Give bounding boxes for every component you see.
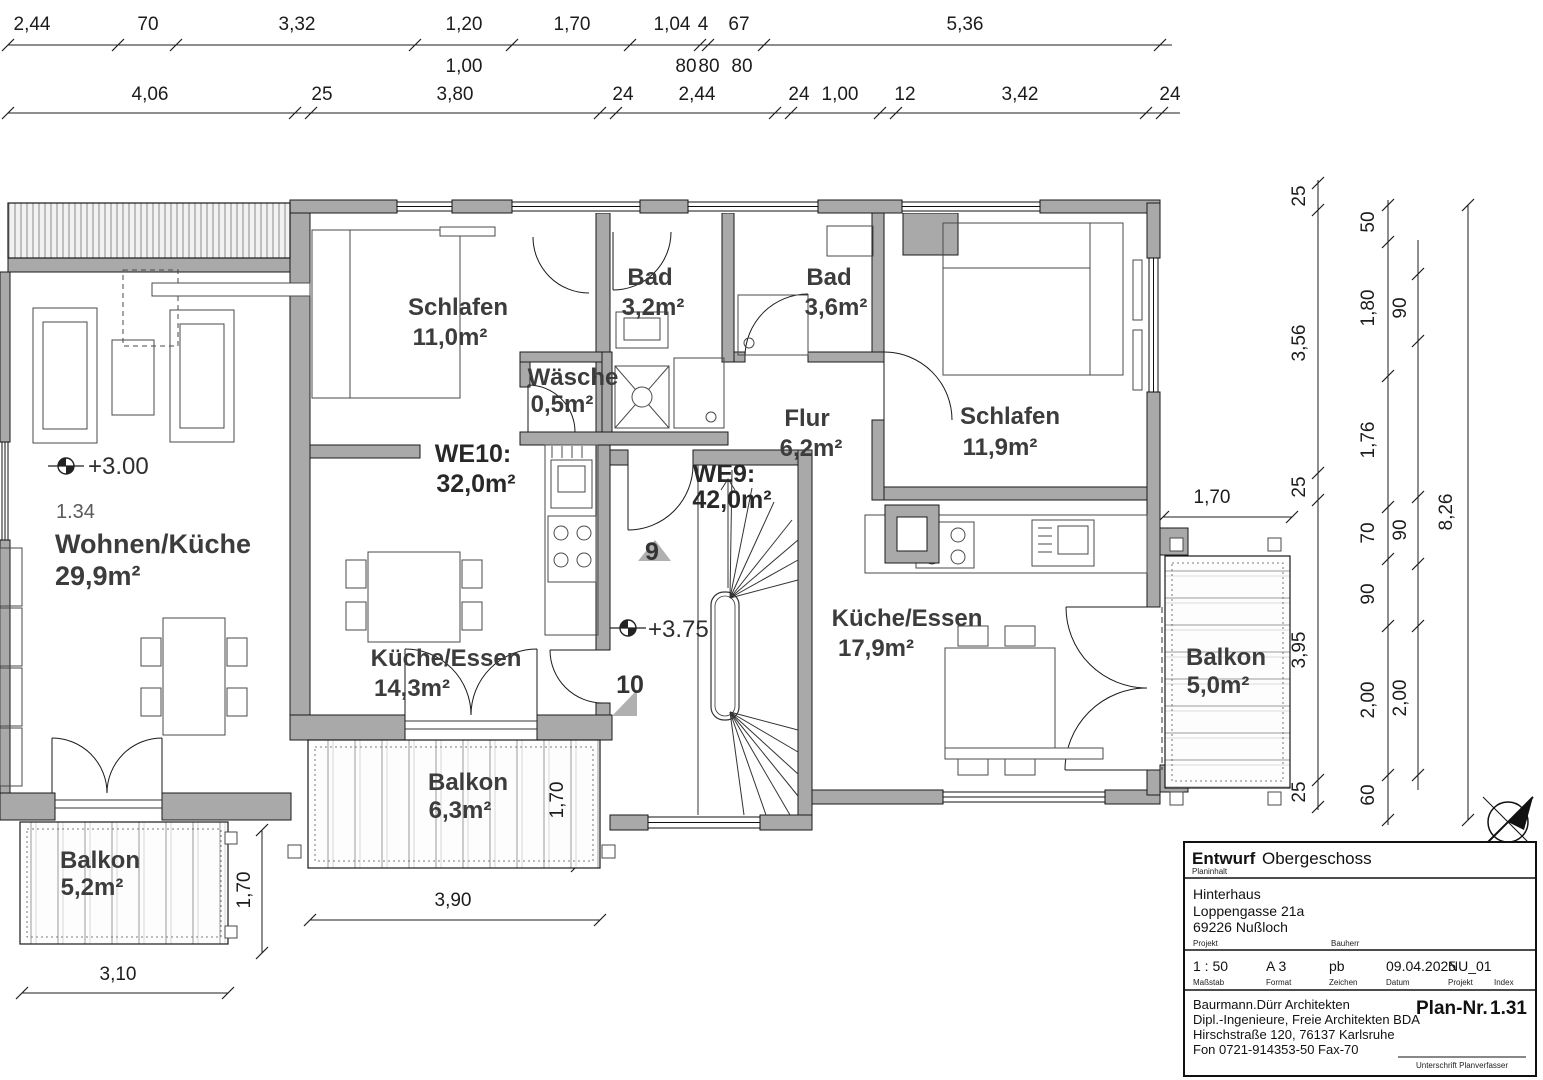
dim-label: 1,70 xyxy=(547,782,568,819)
north-arrow-icon xyxy=(1483,797,1533,847)
room-area-kueche-we10: 14,3m² xyxy=(374,675,450,702)
room-name-waesche: Wäsche xyxy=(528,364,619,391)
room-name-balkon-we9: Balkon xyxy=(1186,644,1266,671)
unit-area-we10: 32,0m² xyxy=(436,470,515,498)
titleblock-field-label: Format xyxy=(1266,978,1292,987)
room-area-balkon-we10: 6,3m² xyxy=(429,797,492,824)
room-name-balkon-left: Balkon xyxy=(60,847,140,874)
dim-label: 50 xyxy=(1358,211,1379,232)
titleblock-project-line: 69226 Nußloch xyxy=(1193,919,1288,935)
titleblock-plan-nr-label: Plan-Nr. xyxy=(1416,998,1488,1019)
dim-label: 1,20 xyxy=(446,14,483,35)
room-area-schlafen-we10: 11,0m² xyxy=(413,324,488,351)
titleblock-project-line: Loppengasse 21a xyxy=(1193,903,1305,919)
dim-label: 12 xyxy=(894,84,915,105)
dim-label: 67 xyxy=(728,14,749,35)
titleblock-title: Obergeschoss xyxy=(1262,849,1372,868)
dim-label: 70 xyxy=(1358,522,1379,543)
stairs xyxy=(698,465,798,815)
room-name-flur: Flur xyxy=(784,405,829,432)
titleblock-field-value: 09.04.2025 xyxy=(1386,958,1456,974)
dim-label: 3,56 xyxy=(1289,325,1310,362)
dim-label: 3,95 xyxy=(1289,632,1310,669)
dim-label: 70 xyxy=(137,14,158,35)
room-area-schlafen-we9: 11,9m² xyxy=(963,434,1038,461)
room-area-kueche-we9: 17,9m² xyxy=(838,635,914,662)
dim-label: 80 xyxy=(675,56,696,77)
dim-label: 24 xyxy=(612,84,634,105)
dim-label: 1,70 xyxy=(1194,487,1231,508)
room-area-bad-we9: 3,6m² xyxy=(805,294,868,321)
dim-label: 1,04 xyxy=(654,14,691,35)
dim-label: 3,90 xyxy=(435,890,472,911)
dim-label: 1,00 xyxy=(822,84,859,105)
unit-label-we10: WE10: xyxy=(435,440,511,468)
room-number-wohnen: 1.34 xyxy=(56,501,95,523)
dim-label: 3,10 xyxy=(100,964,137,985)
unit-area-we9: 42,0m² xyxy=(692,486,771,514)
unit-label-we9: WE9: xyxy=(693,460,756,488)
dim-label: 4,06 xyxy=(132,84,169,105)
room-name-kueche-we9: Küche/Essen xyxy=(832,605,983,632)
dim-label: 80 xyxy=(698,56,719,77)
titleblock-field-value: 1 : 50 xyxy=(1193,958,1228,974)
dim-label: 1,70 xyxy=(554,14,591,35)
dim-label: 1,00 xyxy=(446,56,483,77)
titleblock-planinhalt-label: Planinhalt xyxy=(1192,867,1228,876)
stair-number-lower: 10 xyxy=(616,671,644,699)
titleblock-bauherr-label: Bauherr xyxy=(1331,939,1360,948)
titleblock-field-label: Projekt xyxy=(1448,978,1474,987)
room-name-balkon-we10: Balkon xyxy=(428,769,508,796)
titleblock-field-value: pb xyxy=(1329,958,1345,974)
dim-label: 5,36 xyxy=(947,14,984,35)
level-label-stair: +3.75 xyxy=(648,616,709,643)
titleblock-title-bold: Entwurf xyxy=(1192,849,1256,868)
dim-label: 2,44 xyxy=(14,14,51,35)
titleblock-field-label: Maßstab xyxy=(1193,978,1225,987)
dim-label: 25 xyxy=(1289,476,1310,497)
dim-label: 1,70 xyxy=(234,872,255,909)
dim-label: 2,00 xyxy=(1390,680,1411,717)
dim-label: 60 xyxy=(1358,784,1379,805)
dim-label: 90 xyxy=(1390,519,1411,540)
room-area-flur: 6,2m² xyxy=(780,435,843,462)
furniture xyxy=(0,223,1147,786)
floorplan-page: 2,44 70 3,32 1,20 1,70 1,04 4 67 5,36 1,… xyxy=(0,0,1543,1080)
dim-label: 24 xyxy=(788,84,810,105)
dim-label: 90 xyxy=(1390,297,1411,318)
titleblock-field-label: Index xyxy=(1494,978,1514,987)
titleblock-signature-label: Unterschrift Planverfasser xyxy=(1416,1061,1508,1070)
dim-label: 25 xyxy=(311,84,332,105)
room-area-waesche: 0,5m² xyxy=(531,391,594,418)
dim-label: 3,32 xyxy=(279,14,316,35)
dim-label: 25 xyxy=(1289,185,1310,206)
dim-label: 3,80 xyxy=(437,84,474,105)
room-area-wohnen: 29,9m² xyxy=(55,561,141,591)
room-area-bad-we10: 3,2m² xyxy=(622,294,685,321)
titleblock-firm-line: Dipl.-Ingenieure, Freie Architekten BDA xyxy=(1193,1012,1420,1027)
titleblock-field-label: Zeichen xyxy=(1329,978,1357,987)
dim-label: 80 xyxy=(731,56,752,77)
room-name-kueche-we10: Küche/Essen xyxy=(371,645,522,672)
level-markers xyxy=(48,458,671,716)
upper-terrace-hatch xyxy=(8,203,290,258)
dim-label: 24 xyxy=(1159,84,1181,105)
titleblock-firm-line: Hirschstraße 120, 76137 Karlsruhe xyxy=(1193,1027,1395,1042)
title-block: Entwurf Obergeschoss Planinhalt Hinterha… xyxy=(1184,842,1536,1076)
titleblock-field-value: NU_01 xyxy=(1448,958,1492,974)
room-area-balkon-left: 5,2m² xyxy=(61,874,124,901)
dim-label: 2,44 xyxy=(679,84,716,105)
top-dimension-labels: 2,44 70 3,32 1,20 1,70 1,04 4 67 5,36 1,… xyxy=(14,14,1181,105)
titleblock-firm-line: Baurmann.Dürr Architekten xyxy=(1193,997,1350,1012)
dim-label: 2,00 xyxy=(1358,682,1379,719)
room-name-schlafen-we9: Schlafen xyxy=(960,403,1060,430)
level-label-main: +3.00 xyxy=(88,453,149,480)
room-name-bad-we9: Bad xyxy=(806,264,851,291)
titleblock-field-label: Datum xyxy=(1386,978,1410,987)
dim-label: 1,80 xyxy=(1358,290,1379,327)
titleblock-projekt-label: Projekt xyxy=(1193,939,1219,948)
titleblock-field-value: A 3 xyxy=(1266,958,1286,974)
titleblock-project-line: Hinterhaus xyxy=(1193,886,1261,902)
dim-label: 1,76 xyxy=(1358,422,1379,459)
dim-label: 90 xyxy=(1358,583,1379,604)
room-name-wohnen: Wohnen/Küche xyxy=(55,529,251,559)
stair-number-upper: 9 xyxy=(645,538,659,566)
room-area-balkon-we9: 5,0m² xyxy=(1187,672,1250,699)
titleblock-plan-nr-value: 1.31 xyxy=(1490,998,1527,1019)
floorplan-drawing: 2,44 70 3,32 1,20 1,70 1,04 4 67 5,36 1,… xyxy=(0,0,1543,1080)
dim-label: 3,42 xyxy=(1002,84,1039,105)
titleblock-firm-line: Fon 0721-914353-50 Fax-70 xyxy=(1193,1042,1359,1057)
dim-label: 8,26 xyxy=(1436,494,1457,531)
room-name-schlafen-we10: Schlafen xyxy=(408,294,508,321)
room-name-bad-we10: Bad xyxy=(627,264,672,291)
dim-label: 25 xyxy=(1289,781,1310,802)
dim-label: 4 xyxy=(698,14,709,35)
